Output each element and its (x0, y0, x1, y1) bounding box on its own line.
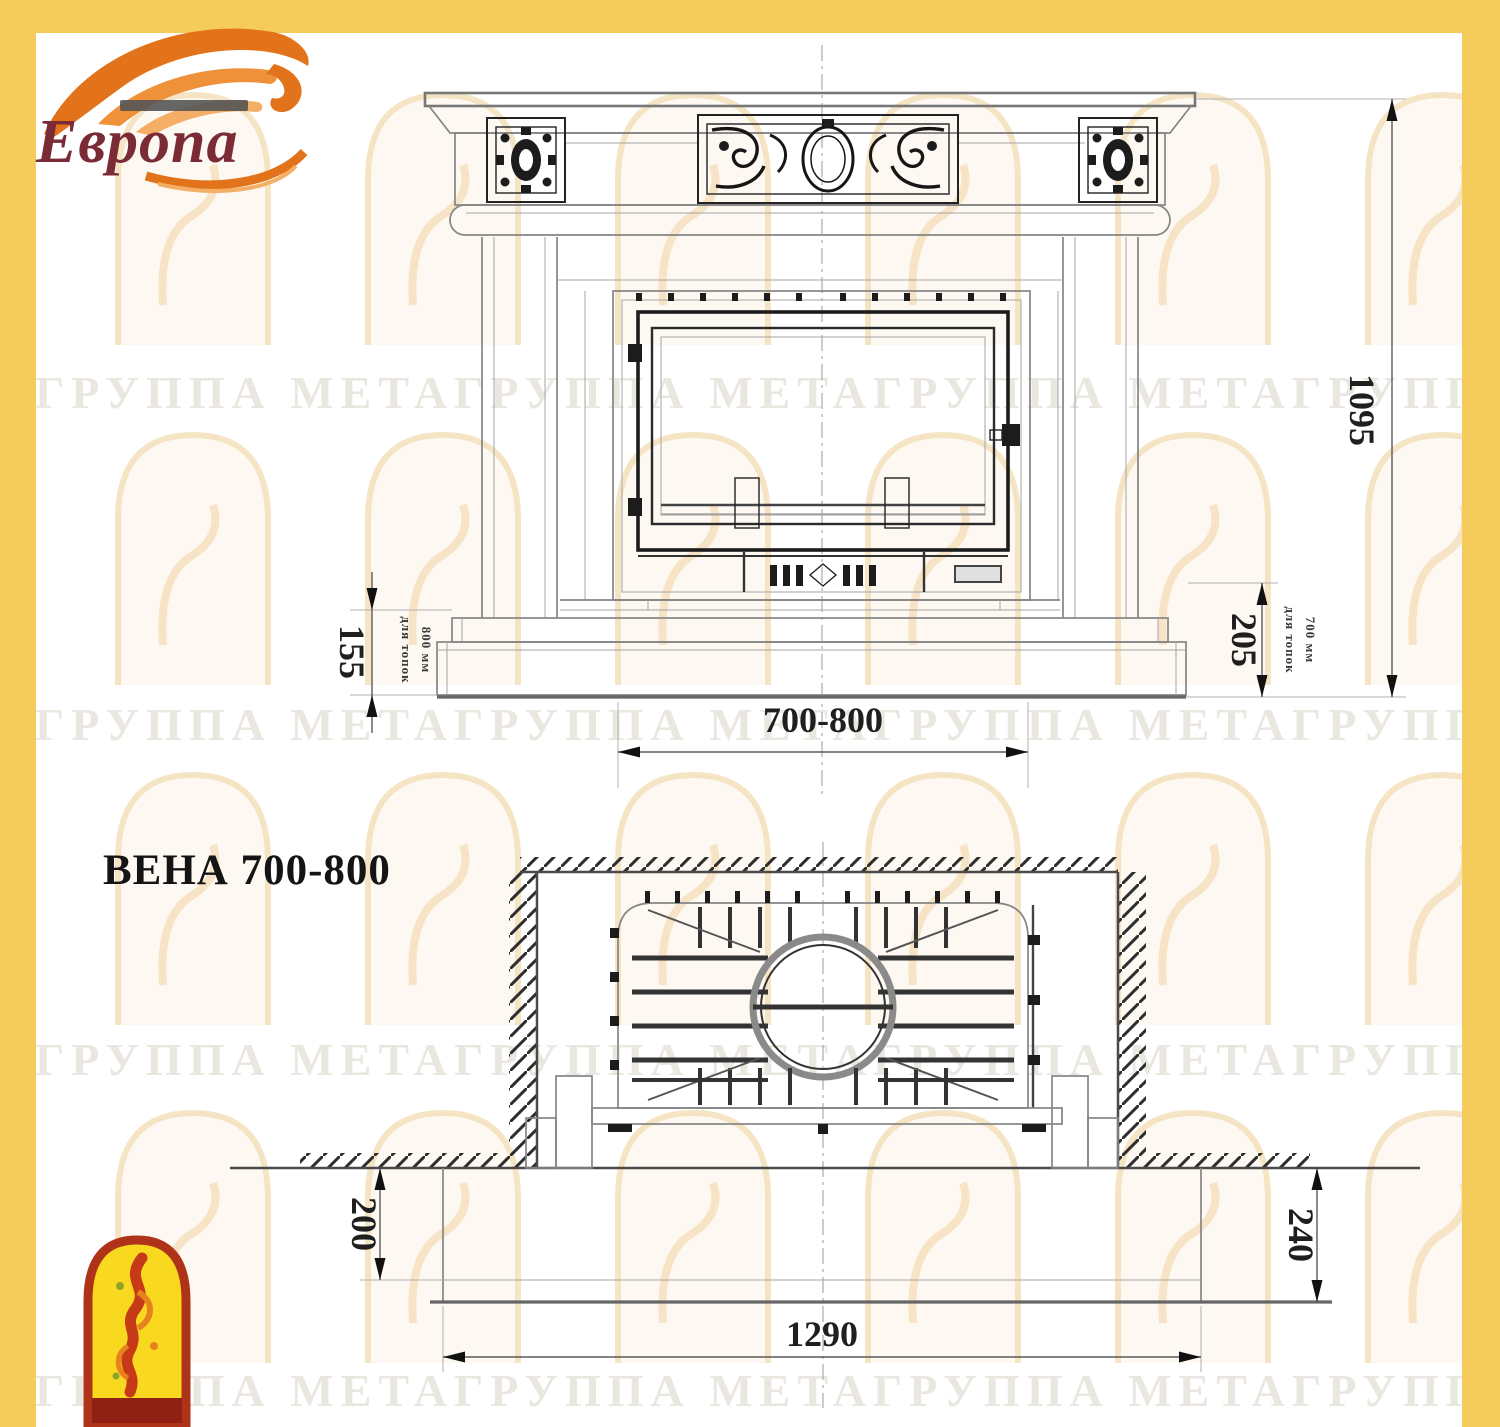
watermark-row-1: ГРУППА МЕТАГРУППА МЕТАГРУППА МЕТАГРУППА … (35, 367, 1500, 418)
base-plinth (437, 618, 1186, 697)
border-right (1462, 0, 1500, 1427)
watermark-row-4: ГРУППА МЕТАГРУППА МЕТАГРУППА МЕТАГРУППА … (35, 1365, 1500, 1416)
logo-wordmark: Европа (35, 108, 239, 176)
dim-depth-right-label: 240 (1281, 1208, 1321, 1262)
firebox-plan (526, 891, 1118, 1168)
dim-base-left-label: 155 (332, 625, 372, 679)
note-firebox-800-line2: 800 мм (419, 627, 434, 673)
ash-grille-icon (770, 564, 876, 586)
hinge-top-icon (628, 344, 642, 362)
border-left (0, 0, 36, 1427)
support-right-outer (1088, 1118, 1118, 1168)
note-firebox-700-line2: 700 мм (1303, 617, 1318, 663)
catalog-page: ГРУППА МЕТАГРУППА МЕТАГРУППА МЕТАГРУППА … (0, 0, 1500, 1427)
dim-width-range-label: 700-800 (763, 700, 883, 740)
dim-base-right-label: 205 (1224, 613, 1264, 667)
sub-frieze-molding (450, 205, 1170, 235)
dimension-240: 240 (1281, 1168, 1323, 1302)
logo-evropa: Европа (28, 4, 328, 204)
logo-meta-arch (78, 1226, 196, 1427)
frieze-panel (455, 115, 1165, 205)
dim-depth-left-label: 200 (344, 1197, 384, 1251)
dimension-1290: 1290 (443, 1306, 1201, 1372)
model-title: ВЕНА 700-800 (103, 847, 391, 894)
note-firebox-800-line1: для топок (399, 616, 414, 683)
technical-drawing: ГРУППА МЕТАГРУППА МЕТАГРУППА МЕТАГРУППА … (0, 0, 1500, 1427)
door-latch (990, 430, 1002, 440)
arch-base-bar (92, 1398, 182, 1423)
door-handle-icon (1002, 424, 1020, 446)
fireplace-front-view (425, 45, 1195, 795)
nameplate (955, 566, 1001, 582)
hinge-bottom-icon (628, 498, 642, 516)
dim-hearth-width-label: 1290 (786, 1314, 858, 1354)
support-right-inner (1052, 1076, 1088, 1168)
support-left-inner (556, 1076, 592, 1168)
note-firebox-700-line1: для топок (1283, 606, 1298, 673)
dim-height-label: 1095 (1342, 374, 1382, 446)
